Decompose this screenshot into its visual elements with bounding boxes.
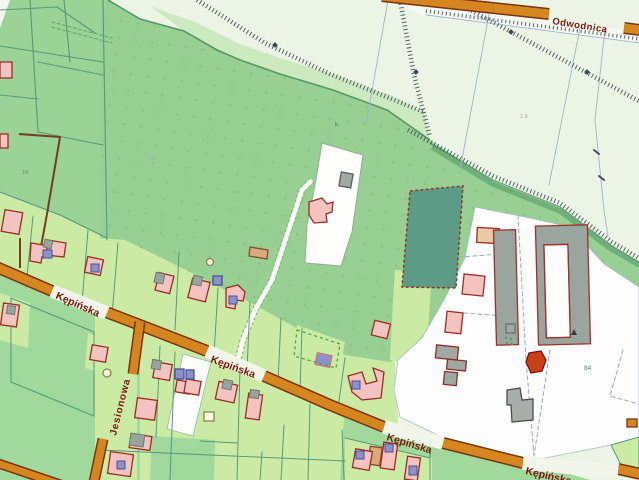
svg-text:24: 24 <box>150 156 156 162</box>
svg-text:1.9: 1.9 <box>520 114 528 120</box>
svg-text:18: 18 <box>22 170 28 176</box>
svg-text:84: 84 <box>584 365 592 372</box>
svg-text:k.: k. <box>335 122 340 128</box>
